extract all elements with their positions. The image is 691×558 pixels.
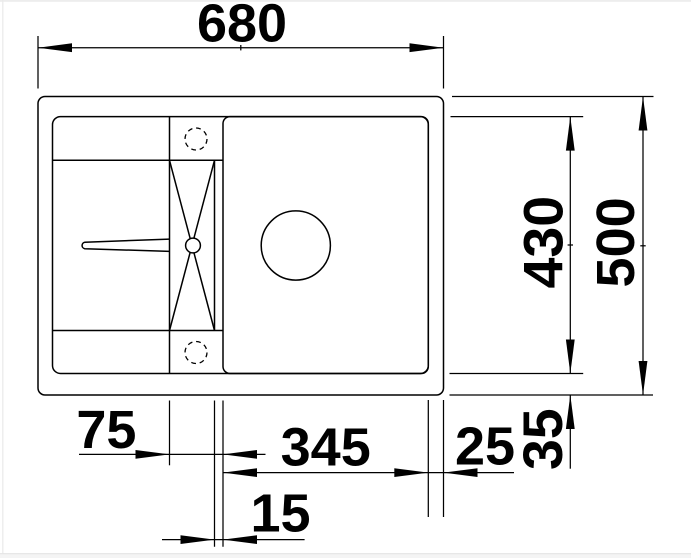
svg-text:430: 430 [513,196,575,289]
svg-text:25: 25 [455,417,515,477]
svg-text:500: 500 [586,197,646,287]
svg-text:75: 75 [76,400,136,460]
svg-text:345: 345 [281,418,371,478]
svg-text:680: 680 [197,0,287,54]
svg-text:35: 35 [512,408,574,470]
svg-text:15: 15 [250,483,310,543]
